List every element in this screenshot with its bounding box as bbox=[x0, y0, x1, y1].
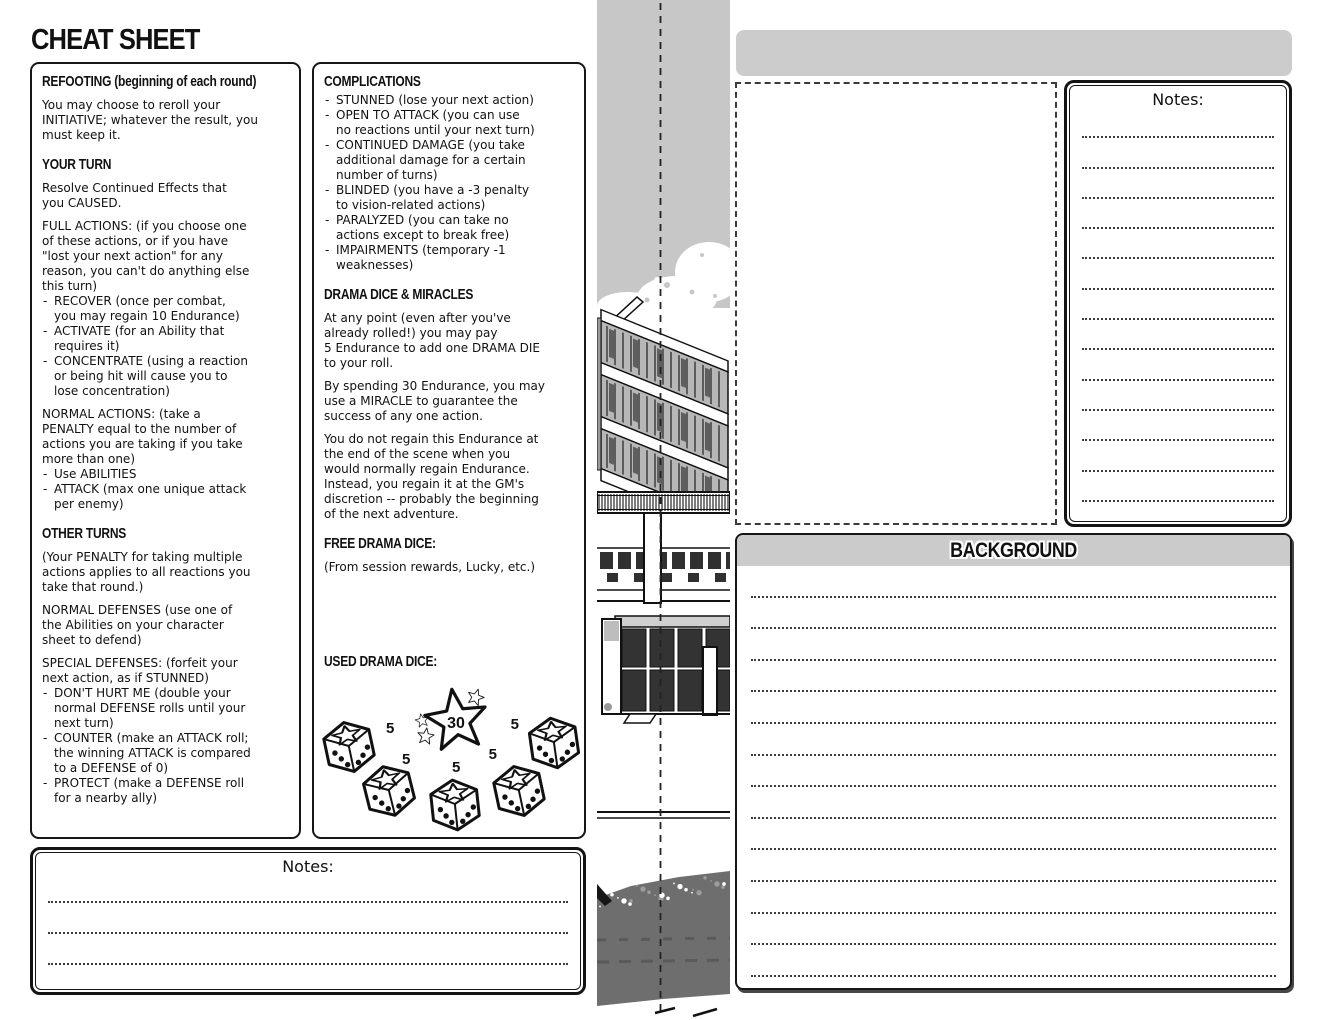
rule-paragraph: You do not regain this Endurance at the … bbox=[324, 432, 575, 522]
section-heading: FREE DRAMA DICE: bbox=[324, 535, 525, 552]
ruled-line bbox=[1082, 411, 1274, 441]
ruled-line bbox=[751, 692, 1276, 724]
rule-bullet: CONCENTRATE (using a reaction or being h… bbox=[42, 354, 290, 399]
rule-bullet: IMPAIRMENTS (temporary -1 weaknesses) bbox=[324, 243, 575, 273]
rule-bullet: Use ABILITIES bbox=[42, 467, 290, 482]
drama-die-icon bbox=[528, 715, 581, 771]
ruled-line bbox=[1082, 472, 1274, 502]
section-heading: REFOOTING (beginning of each round) bbox=[42, 73, 240, 90]
notes-lines bbox=[48, 872, 568, 990]
section-heading: DRAMA DICE & MIRACLES bbox=[324, 286, 525, 303]
accent-star-icon bbox=[466, 687, 486, 707]
blank-header-bar bbox=[736, 30, 1292, 76]
rule-bullet: OPEN TO ATTACK (you can use no reactions… bbox=[324, 108, 575, 138]
drama-die-icon bbox=[321, 718, 376, 776]
ruled-line bbox=[751, 850, 1276, 882]
ruled-line bbox=[1082, 502, 1274, 522]
rule-paragraph: NORMAL ACTIONS: (take a PENALTY equal to… bbox=[42, 407, 290, 467]
ruled-line bbox=[1082, 320, 1274, 350]
ruled-line bbox=[48, 903, 568, 934]
rule-paragraph: By spending 30 Endurance, you may use a … bbox=[324, 379, 575, 424]
notes-lines bbox=[1082, 108, 1274, 522]
rules-box-mid: COMPLICATIONSSTUNNED (lose your next act… bbox=[312, 62, 586, 839]
ruled-line bbox=[1082, 350, 1274, 380]
rule-bullet: CONTINUED DAMAGE (you take additional da… bbox=[324, 138, 575, 183]
drama-die-icon bbox=[361, 761, 418, 821]
rule-bullet: RECOVER (once per combat, you may regain… bbox=[42, 294, 290, 324]
rules-sections-left: REFOOTING (beginning of each round)You m… bbox=[42, 73, 290, 806]
die-value-label: 5 bbox=[452, 759, 460, 776]
die-value-label: 5 bbox=[489, 746, 497, 763]
rule-bullet: PARALYZED (you can take no actions excep… bbox=[324, 213, 575, 243]
rule-paragraph: (From session rewards, Lucky, etc.) bbox=[324, 560, 575, 575]
page-title: CHEAT SHEET bbox=[31, 24, 200, 57]
notes-box-right: Notes: bbox=[1064, 80, 1292, 527]
ruled-line bbox=[751, 914, 1276, 946]
rule-bullet: PROTECT (make a DEFENSE roll for a nearb… bbox=[42, 776, 290, 806]
ruled-line bbox=[1082, 199, 1274, 229]
rule-paragraph: FULL ACTIONS: (if you choose one of thes… bbox=[42, 219, 290, 294]
ruled-line bbox=[1082, 108, 1274, 138]
rule-bullet: BLINDED (you have a -3 penalty to vision… bbox=[324, 183, 575, 213]
section-heading: YOUR TURN bbox=[42, 156, 240, 173]
notes-box-bottom: Notes: bbox=[30, 847, 586, 995]
notes-box-bottom-inner: Notes: bbox=[35, 852, 581, 990]
ruled-line bbox=[1082, 381, 1274, 411]
section-heading: COMPLICATIONS bbox=[324, 73, 525, 90]
rule-bullet: STUNNED (lose your next action) bbox=[324, 93, 575, 108]
rule-bullet: COUNTER (make an ATTACK roll; the winnin… bbox=[42, 731, 290, 776]
ruled-line bbox=[1082, 441, 1274, 471]
ruled-line bbox=[1082, 290, 1274, 320]
drama-die-icon bbox=[430, 778, 481, 833]
rule-paragraph: NORMAL DEFENSES (use one of the Abilitie… bbox=[42, 603, 290, 648]
ruled-line bbox=[751, 977, 1276, 990]
accent-star-icon bbox=[417, 727, 435, 745]
die-value-label: 5 bbox=[511, 716, 519, 733]
ruled-line bbox=[751, 661, 1276, 693]
background-title: BACKGROUND bbox=[950, 539, 1077, 563]
ruled-line bbox=[751, 598, 1276, 630]
portrait-placeholder-box bbox=[735, 82, 1057, 525]
ruled-line bbox=[48, 934, 568, 965]
section-heading: OTHER TURNS bbox=[42, 525, 240, 542]
ruled-line bbox=[751, 629, 1276, 661]
used-drama-dice-graphic: 5555530 bbox=[316, 680, 582, 838]
ruled-line bbox=[1082, 169, 1274, 199]
rule-paragraph: At any point (even after you've already … bbox=[324, 311, 575, 371]
rules-box-left: REFOOTING (beginning of each round)You m… bbox=[30, 62, 301, 839]
rule-paragraph: SPECIAL DEFENSES: (forfeit your next act… bbox=[42, 656, 290, 686]
ruled-line bbox=[1082, 259, 1274, 289]
ruled-line bbox=[751, 756, 1276, 788]
die-value-label: 5 bbox=[386, 720, 394, 737]
section-heading: USED DRAMA DICE: bbox=[324, 653, 525, 670]
rule-bullet: ATTACK (max one unique attack per enemy) bbox=[42, 482, 290, 512]
ruled-line bbox=[48, 965, 568, 990]
background-box: BACKGROUND bbox=[735, 533, 1292, 990]
ruled-line bbox=[751, 787, 1276, 819]
background-header-bar: BACKGROUND bbox=[737, 535, 1290, 566]
school-building-illustration bbox=[597, 0, 730, 1020]
rules-sections-mid: COMPLICATIONSSTUNNED (lose your next act… bbox=[324, 73, 575, 670]
die-value-label: 5 bbox=[402, 751, 410, 768]
background-lines bbox=[737, 566, 1290, 990]
cheat-sheet-page: CHEAT SHEET REFOOTING (beginning of each… bbox=[0, 0, 1320, 1020]
ruled-line bbox=[751, 882, 1276, 914]
notes-box-right-inner: Notes: bbox=[1069, 85, 1287, 522]
rule-paragraph: Resolve Continued Effects that you CAUSE… bbox=[42, 181, 290, 211]
ruled-line bbox=[751, 724, 1276, 756]
ruled-line bbox=[751, 945, 1276, 977]
miracle-value-label: 30 bbox=[447, 715, 465, 732]
ruled-line bbox=[48, 872, 568, 903]
rule-bullet: DON'T HURT ME (double your normal DEFENS… bbox=[42, 686, 290, 731]
ruled-line bbox=[751, 819, 1276, 851]
rule-paragraph: (Your PENALTY for taking multiple action… bbox=[42, 550, 290, 595]
drama-die-icon bbox=[491, 762, 546, 820]
rule-bullet: ACTIVATE (for an Ability that requires i… bbox=[42, 324, 290, 354]
ruled-line bbox=[1082, 229, 1274, 259]
ruled-line bbox=[751, 566, 1276, 598]
ruled-line bbox=[1082, 138, 1274, 168]
rule-paragraph: You may choose to reroll your INITIATIVE… bbox=[42, 98, 290, 143]
